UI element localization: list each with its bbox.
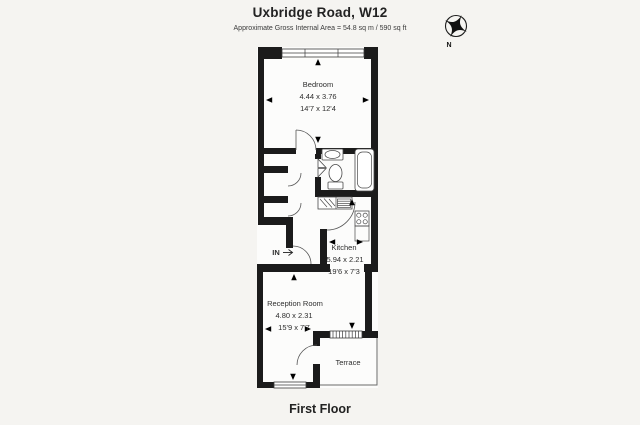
compass-north-label: N [446,42,451,49]
toilet-bowl-icon [329,165,342,182]
bedroom-dims-metric: 4.44 x 3.76 [299,92,336,101]
floorplan-page: Uxbridge Road, W12 Approximate Gross Int… [0,0,640,425]
kitchen-label: Kitchen [331,243,356,252]
reception-dims-metric: 4.80 x 2.31 [275,311,312,320]
basin-bowl-icon [325,151,340,159]
reception-label: Reception Room [267,299,323,308]
kitchen-dims-metric: 5.94 x 2.21 [326,255,363,264]
bedroom-dims-imperial: 14'7 x 12'4 [300,104,336,113]
compass-icon: N [439,9,473,49]
bedroom-label: Bedroom [303,80,333,89]
toilet-cistern-icon [328,182,343,189]
floor-plan: N [0,0,640,425]
kitchen-dims-imperial: 19'6 x 7'3 [328,267,360,276]
terrace-label: Terrace [335,358,360,367]
reception-dims-imperial: 15'9 x 7'7 [278,323,310,332]
hob-icon [355,211,369,226]
entry-in-label: IN [272,248,280,257]
